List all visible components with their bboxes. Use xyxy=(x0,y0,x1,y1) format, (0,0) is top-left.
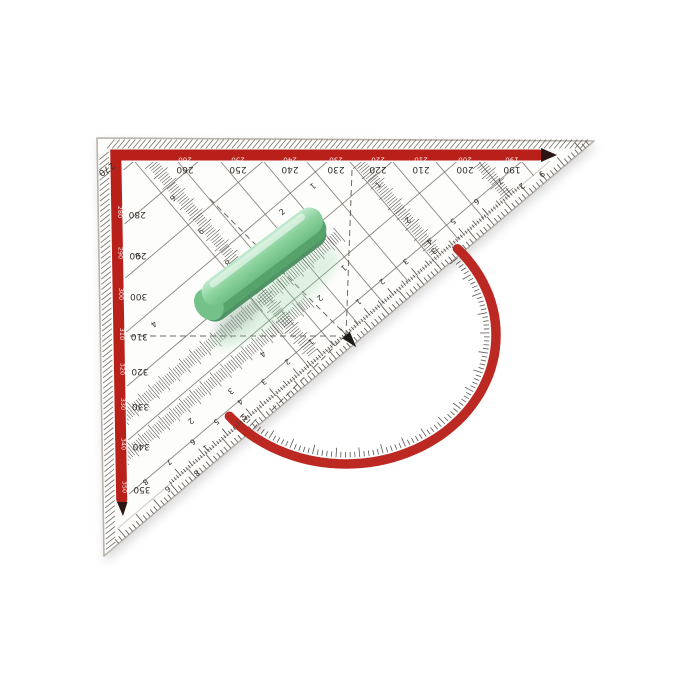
arc-tick xyxy=(269,430,274,438)
arc-tick xyxy=(373,450,374,455)
arc-tick xyxy=(308,448,309,453)
degree-label-left-band: 300 xyxy=(117,288,125,300)
arc-tick xyxy=(459,264,463,267)
arc-tick xyxy=(481,360,486,361)
degree-label-left: 320 xyxy=(131,366,148,376)
arc-tick xyxy=(472,293,481,296)
degree-label-top-band: 200 xyxy=(458,156,471,164)
arc-tick xyxy=(472,382,477,384)
degree-label-left-band: 330 xyxy=(119,398,127,410)
degree-label-left-band: 340 xyxy=(120,438,128,450)
degree-label-top: 200 xyxy=(456,164,473,174)
degree-label-left-band: 350 xyxy=(120,481,128,493)
arc-tick xyxy=(474,289,479,291)
degree-label-top-band: 230 xyxy=(329,156,342,164)
arc-tick xyxy=(421,429,426,437)
arc-tick xyxy=(317,450,318,455)
degree-label-top: 190 xyxy=(503,164,520,174)
degree-label-left-band: 310 xyxy=(118,328,126,340)
arc-tick xyxy=(336,448,337,457)
arc-tick xyxy=(322,450,323,455)
arc-tick xyxy=(480,364,485,365)
degree-label-top: 260 xyxy=(176,164,193,174)
arc-tick xyxy=(470,386,475,388)
arc-tick xyxy=(481,309,486,310)
arc-tick xyxy=(464,271,469,274)
arc-tick xyxy=(479,352,488,353)
degree-label-left: 350 xyxy=(133,484,150,494)
arc-tick xyxy=(453,403,461,409)
arc-tick xyxy=(313,445,315,454)
arc-tick xyxy=(294,444,296,449)
degree-label-left: 300 xyxy=(130,291,147,301)
degree-label-left-band: 320 xyxy=(118,363,126,375)
arc-tick xyxy=(465,387,473,391)
arc-tick xyxy=(303,447,305,452)
arc-tick xyxy=(327,451,328,456)
arc-tick xyxy=(273,436,276,441)
grid-line xyxy=(522,162,700,620)
arc-tick xyxy=(299,445,301,450)
arc-tick xyxy=(277,438,280,443)
arc-tick xyxy=(474,378,479,380)
arc-tick xyxy=(377,449,378,454)
set-square-illustration: 123456712345678 270260260250250240240230… xyxy=(0,0,700,700)
arc-tick xyxy=(286,441,288,446)
arc-tick xyxy=(368,450,369,455)
arc-tick xyxy=(399,443,401,448)
degree-label-top: 240 xyxy=(281,164,298,174)
degree-label-left: 310 xyxy=(130,331,147,341)
arc-tick xyxy=(438,417,445,424)
arc-tick xyxy=(453,408,457,411)
arc-tick xyxy=(464,396,469,399)
arc-tick xyxy=(468,278,473,281)
arc-tick xyxy=(411,438,414,443)
degree-label-left: 330 xyxy=(132,401,149,411)
degree-label-top-band: 210 xyxy=(414,156,427,164)
grid-line xyxy=(307,162,695,620)
degree-label-top: 230 xyxy=(327,164,344,174)
arc-tick xyxy=(456,261,460,264)
arc-tick xyxy=(407,440,409,445)
arc-tick xyxy=(447,414,451,418)
arc-tick xyxy=(472,286,477,288)
arc-tick xyxy=(444,417,448,421)
degree-label-top-band: 220 xyxy=(371,156,384,164)
arc-tick xyxy=(386,447,388,452)
degree-label-left-band: 280 xyxy=(116,206,124,218)
arc-tick xyxy=(461,268,466,271)
degree-label-left: 340 xyxy=(132,441,149,451)
arc-tick xyxy=(480,305,485,306)
arc-tick xyxy=(395,444,397,449)
arc-tick xyxy=(463,275,471,280)
arc-tick xyxy=(466,392,471,395)
arc-tick xyxy=(281,439,283,444)
arc-tick xyxy=(483,321,488,322)
degree-label-top: 220 xyxy=(369,164,386,174)
arc-tick xyxy=(331,451,332,456)
degree-label-left-band: 290 xyxy=(116,247,124,259)
degree-label-top-band: 250 xyxy=(231,156,244,164)
grid-line xyxy=(479,162,700,620)
arc-tick xyxy=(477,297,482,299)
arc-tick xyxy=(478,313,487,315)
product-photo-canvas: 123456712345678 270260260250250240240230… xyxy=(0,0,700,700)
arc-tick xyxy=(261,429,264,433)
arc-tick xyxy=(479,301,484,303)
arc-tick xyxy=(461,399,466,402)
arc-tick xyxy=(470,282,475,284)
top-red-band xyxy=(111,150,540,161)
arc-tick xyxy=(482,317,487,318)
degree-label-top: 210 xyxy=(412,164,429,174)
arc-tick xyxy=(415,436,418,441)
arc-tick xyxy=(427,430,430,434)
arc-tick xyxy=(364,451,365,456)
degree-label-top-band: 260 xyxy=(178,156,191,164)
arc-tick xyxy=(265,432,268,437)
arc-tick xyxy=(290,439,294,448)
degree-label-left: 280 xyxy=(128,209,145,219)
arc-tick xyxy=(359,447,360,456)
arc-tick xyxy=(476,375,481,377)
arc-tick xyxy=(483,348,488,349)
arc-tick xyxy=(438,422,442,426)
arc-tick xyxy=(479,367,484,369)
degree-label-top-band: 240 xyxy=(283,156,296,164)
arc-tick xyxy=(450,411,454,415)
arc-tick xyxy=(459,402,463,405)
arc-tick xyxy=(434,425,438,429)
arc-tick xyxy=(257,427,260,431)
arc-tick xyxy=(390,446,392,451)
arc-tick xyxy=(473,370,482,373)
arc-tick xyxy=(431,427,434,431)
degree-label-top: 250 xyxy=(229,164,246,174)
arc-tick xyxy=(381,444,383,453)
arc-tick xyxy=(419,434,422,439)
arc-tick xyxy=(402,438,406,447)
degree-label-top-band: 190 xyxy=(505,156,518,164)
arc-tick xyxy=(482,356,487,357)
